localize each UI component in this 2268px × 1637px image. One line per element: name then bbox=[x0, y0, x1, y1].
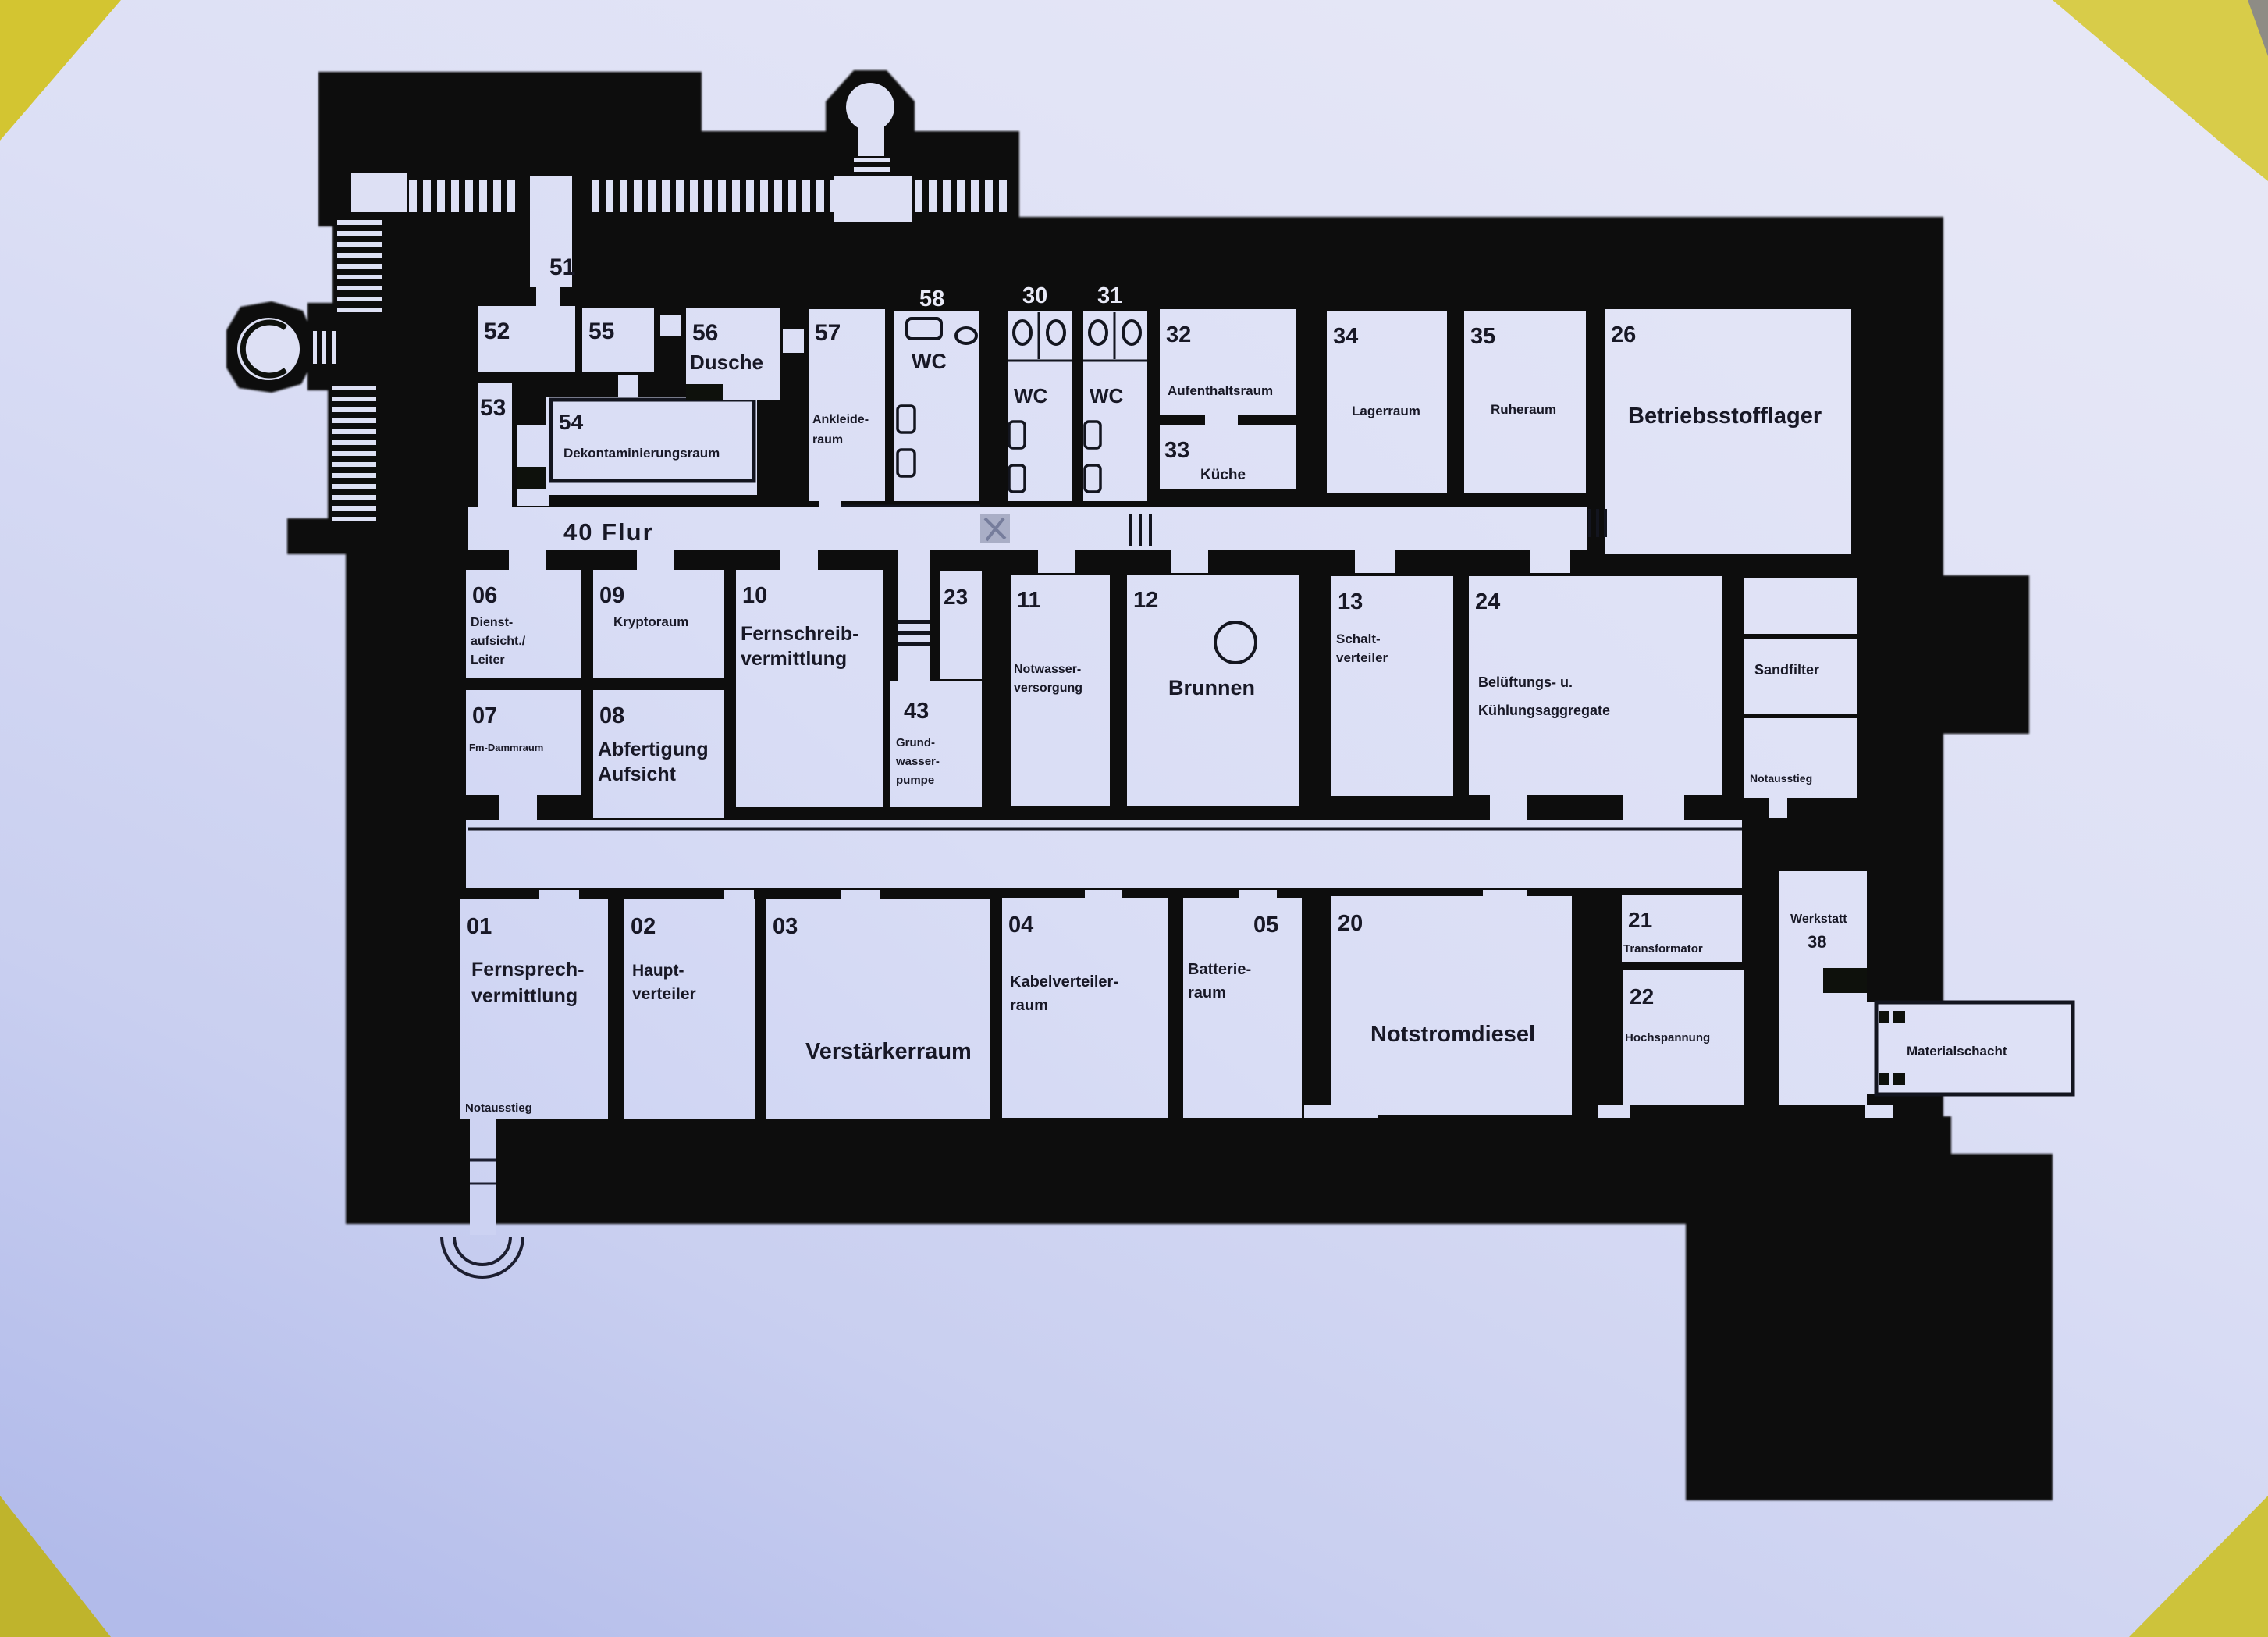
svg-text:Notwasser-: Notwasser- bbox=[1014, 663, 1081, 676]
svg-text:04: 04 bbox=[1008, 913, 1033, 938]
svg-text:raum: raum bbox=[1010, 997, 1048, 1014]
svg-text:03: 03 bbox=[773, 914, 798, 939]
svg-text:pumpe: pumpe bbox=[896, 774, 934, 787]
svg-text:Transformator: Transformator bbox=[1623, 942, 1703, 956]
svg-text:versorgung: versorgung bbox=[1014, 681, 1082, 695]
svg-text:58: 58 bbox=[919, 286, 944, 311]
svg-text:Werkstatt: Werkstatt bbox=[1790, 913, 1847, 926]
svg-text:verteiler: verteiler bbox=[1336, 650, 1388, 665]
svg-text:WC: WC bbox=[1014, 384, 1048, 407]
svg-text:Notausstieg: Notausstieg bbox=[465, 1101, 532, 1115]
svg-text:21: 21 bbox=[1628, 908, 1652, 932]
svg-text:Ruheraum: Ruheraum bbox=[1491, 402, 1556, 417]
svg-text:Sandfilter: Sandfilter bbox=[1754, 662, 1819, 678]
svg-text:53: 53 bbox=[480, 395, 506, 421]
svg-text:05: 05 bbox=[1253, 913, 1278, 938]
svg-text:23: 23 bbox=[944, 585, 968, 609]
svg-text:Kühlungsaggregate: Kühlungsaggregate bbox=[1478, 703, 1610, 718]
svg-text:Küche: Küche bbox=[1200, 467, 1246, 483]
svg-text:Notausstieg: Notausstieg bbox=[1750, 772, 1812, 785]
svg-text:wasser-: wasser- bbox=[895, 755, 940, 768]
svg-text:09: 09 bbox=[599, 583, 624, 608]
svg-text:56: 56 bbox=[692, 320, 718, 346]
svg-text:Betriebsstofflager: Betriebsstofflager bbox=[1628, 404, 1822, 429]
svg-text:Materialschacht: Materialschacht bbox=[1907, 1044, 2007, 1059]
svg-text:34: 34 bbox=[1333, 324, 1358, 349]
svg-text:Lagerraum: Lagerraum bbox=[1352, 404, 1420, 418]
svg-text:26: 26 bbox=[1611, 322, 1636, 347]
svg-text:01: 01 bbox=[467, 914, 492, 939]
svg-text:Abfertigung: Abfertigung bbox=[598, 738, 709, 760]
svg-text:WC: WC bbox=[912, 350, 947, 373]
svg-text:32: 32 bbox=[1166, 322, 1191, 347]
svg-text:40 Flur: 40 Flur bbox=[563, 518, 654, 546]
svg-text:33: 33 bbox=[1164, 438, 1189, 463]
svg-text:22: 22 bbox=[1630, 984, 1654, 1009]
svg-text:35: 35 bbox=[1470, 324, 1495, 349]
svg-text:Dusche: Dusche bbox=[690, 351, 763, 374]
svg-text:Verstärkerraum: Verstärkerraum bbox=[805, 1039, 972, 1064]
svg-text:Kryptoraum: Kryptoraum bbox=[613, 614, 688, 629]
svg-text:WC: WC bbox=[1090, 384, 1124, 407]
svg-text:52: 52 bbox=[484, 319, 510, 344]
svg-text:raum: raum bbox=[812, 433, 843, 447]
svg-text:55: 55 bbox=[588, 319, 614, 344]
svg-text:20: 20 bbox=[1338, 911, 1363, 936]
svg-text:13: 13 bbox=[1338, 589, 1363, 614]
svg-text:11: 11 bbox=[1017, 588, 1041, 613]
svg-text:06: 06 bbox=[472, 583, 497, 608]
svg-text:vermittlung: vermittlung bbox=[741, 648, 847, 670]
svg-text:07: 07 bbox=[472, 703, 497, 728]
svg-text:54: 54 bbox=[559, 410, 584, 434]
svg-text:Aufenthaltsraum: Aufenthaltsraum bbox=[1168, 383, 1273, 398]
svg-text:Fernsprech-: Fernsprech- bbox=[471, 959, 584, 980]
svg-text:43: 43 bbox=[904, 699, 929, 724]
svg-text:Grund-: Grund- bbox=[896, 736, 935, 749]
svg-text:Haupt-: Haupt- bbox=[632, 962, 684, 980]
svg-text:31: 31 bbox=[1097, 283, 1122, 308]
svg-text:Dekontaminierungsraum: Dekontaminierungsraum bbox=[563, 446, 720, 461]
svg-text:Notstromdiesel: Notstromdiesel bbox=[1370, 1022, 1535, 1047]
svg-text:10: 10 bbox=[742, 583, 767, 608]
svg-text:Kabelverteiler-: Kabelverteiler- bbox=[1010, 973, 1118, 991]
svg-text:Dienst-: Dienst- bbox=[471, 616, 513, 629]
svg-text:Brunnen: Brunnen bbox=[1168, 676, 1255, 699]
svg-text:vermittlung: vermittlung bbox=[471, 985, 578, 1007]
svg-text:51: 51 bbox=[549, 254, 575, 280]
svg-text:raum: raum bbox=[1188, 984, 1226, 1002]
svg-text:12: 12 bbox=[1133, 588, 1158, 613]
svg-text:24: 24 bbox=[1475, 589, 1500, 614]
svg-text:verteiler: verteiler bbox=[632, 985, 696, 1003]
svg-text:30: 30 bbox=[1022, 283, 1047, 308]
svg-text:Fm-Dammraum: Fm-Dammraum bbox=[469, 742, 543, 753]
svg-text:Batterie-: Batterie- bbox=[1188, 961, 1251, 978]
svg-text:38: 38 bbox=[1808, 932, 1826, 952]
svg-text:Leiter: Leiter bbox=[471, 653, 505, 667]
svg-text:02: 02 bbox=[631, 914, 656, 939]
svg-text:Ankleide-: Ankleide- bbox=[812, 413, 869, 426]
svg-text:Hochspannung: Hochspannung bbox=[1625, 1031, 1710, 1044]
svg-text:57: 57 bbox=[815, 320, 841, 346]
svg-text:Schalt-: Schalt- bbox=[1336, 632, 1381, 646]
svg-text:08: 08 bbox=[599, 703, 624, 728]
svg-text:Fernschreib-: Fernschreib- bbox=[741, 623, 858, 645]
svg-text:Aufsicht: Aufsicht bbox=[598, 763, 677, 785]
svg-text:aufsicht./: aufsicht./ bbox=[471, 635, 526, 648]
svg-text:Belüftungs- u.: Belüftungs- u. bbox=[1478, 674, 1573, 690]
